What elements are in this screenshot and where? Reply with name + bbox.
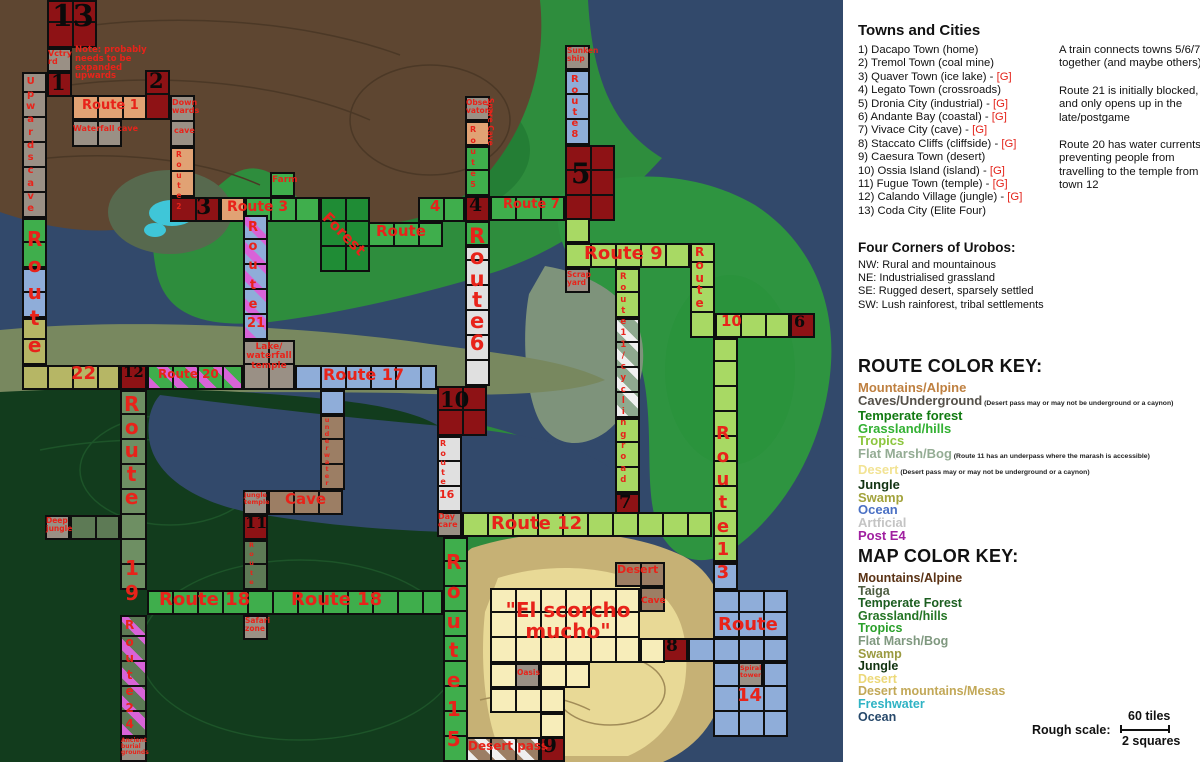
map-tile-desert [640,638,665,663]
map-label: Route 7 [503,198,560,211]
map-label: Route15 [446,548,461,754]
town-list-item: 5) Dronia City (industrial) - [G] [858,98,1022,111]
map-key-item: Temperate Forest [858,597,1005,610]
map-tile-desert [490,688,565,713]
map-label: Vctry rd [48,50,72,66]
map-label: Route 3 [227,200,288,214]
map-label: 4 [469,196,482,216]
route-key-note: (Route 11 has an underpass where the mar… [952,453,1150,460]
map-label: 19 [125,556,139,606]
freshwater-lake [144,223,166,237]
map-tile-tropics [615,418,640,493]
route-key-item: Swamp [858,492,1173,505]
map-label: 21 [247,317,265,330]
map-label: Route 18 [159,591,250,610]
map-label: Route 1 [82,99,139,112]
corners-title: Four Corners of Urobos: [858,240,1016,255]
map-label: Route [249,541,254,587]
corner-item: SW: Lush rainforest, tribal settlements [858,299,1044,312]
map-label: Jungle temple [244,492,270,505]
corner-item: NW: Rural and mountainous [858,259,1044,272]
map-label: Route [440,439,446,487]
map-label: 5 [571,160,590,189]
map-label: Waterfall cave [73,125,138,133]
map-label: Spare Cave [486,98,494,146]
map-label: cave [174,127,195,135]
gym-badge: [G] [992,111,1007,123]
route-key-label: Post E4 [858,528,906,543]
map-label: Desert pass [468,740,548,752]
map-label: 1 [51,72,66,94]
town-list: 1) Dacapo Town (home)2) Tremol Town (coa… [858,44,1022,218]
map-tile-jungleRoute [243,540,268,590]
map-label: Down wards [172,99,199,115]
map-label: 10 [721,314,742,329]
gym-badge: [G] [972,124,987,136]
map-label: Route2 [176,150,182,212]
map-label: 3 [196,196,211,219]
map-tile-jungleRoute [70,515,120,540]
route-key-note: (Desert pass may or may not be undergrou… [982,400,1173,407]
corner-item: NE: Industrialised grassland [858,272,1044,285]
town-list-item: 6) Andante Bay (coastal) - [G] [858,111,1022,124]
scale-bottom-label: 2 squares [1122,734,1180,748]
note-text: Route 21 is initially blocked, and only … [1059,85,1200,125]
map-tile-grass [465,146,490,196]
map-label: 14 [737,687,762,706]
map-tile-grass [418,197,465,222]
map-label: Deep jungle [46,517,72,532]
route-key-item: Post E4 [858,530,1173,543]
map-label: Route 17 [323,367,404,383]
map-label: 16 [439,489,454,500]
town-list-item: 3) Quaver Town (ice lake) - [G] [858,71,1022,84]
map-label: Route 20 [158,368,219,380]
map-label: Day care [438,513,458,529]
route-key-item: Jungle [858,479,1173,492]
route-key-item: Grassland/hills [858,423,1173,436]
town-list-item: 7) Vivace City (cave) - [G] [858,124,1022,137]
map-label: Route24 [125,617,134,733]
map-label: Route [248,218,258,314]
route-key-label: Caves/Underground [858,393,982,408]
map-tile-oceanRoute [320,390,345,415]
note-text: A train connects towns 5/6/7 together (a… [1059,44,1200,71]
gym-badge: [G] [993,98,1008,110]
map-key-list: Mountains/AlpineTaigaTemperate ForestGra… [858,572,1005,723]
map-label: Ancient burial grounds [121,738,149,757]
map-label: Safari zone [245,617,270,632]
legend-panel: Towns and Cities 1) Dacapo Town (home)2)… [843,0,1200,762]
route-key-list: Mountains/AlpineCaves/Underground (Deser… [858,382,1173,542]
map-canvas: 13Vctry rdNote: probably needs to be exp… [0,0,843,762]
map-label: underwater [324,417,330,487]
map-label: Route [718,616,778,635]
route-key-note: (Desert pass may or may not be undergrou… [898,469,1089,476]
map-label: Spiral tower [740,665,761,678]
town-list-item: 12) Calando Village (jungle) - [G] [858,191,1022,204]
map-label: Route6 [469,226,485,354]
town-list-item: 10) Ossia Island (island) - [G] [858,165,1022,178]
town-list-item: 9) Caesura Town (desert) [858,151,1022,164]
gym-badge: [G] [993,178,1008,190]
map-label: Desert [617,564,658,575]
town-list-item: 8) Staccato Cliffs (cliffside) - [G] [858,138,1022,151]
map-label: 11 [245,515,267,531]
map-label: 10 [440,389,469,411]
map-label: 9 [543,735,557,756]
scale-bar [1120,729,1170,731]
map-label: Scrap yard [567,271,591,286]
gym-badge: [G] [997,71,1012,83]
map-key-item: Ocean [858,711,1005,724]
map-tile-desert [490,663,590,688]
gym-badge: [G] [1007,191,1022,203]
corner-item: SE: Rugged desert, sparsely settled [858,285,1044,298]
corners-list: NW: Rural and mountainousNE: Industriali… [858,259,1044,312]
map-label: Route13 [716,422,730,584]
map-label: Route [27,226,42,358]
map-label: 4 [430,199,440,214]
route-key-title: ROUTE COLOR KEY: [858,356,1042,377]
gym-badge: [G] [1001,138,1016,150]
route-key-label: Flat Marsh/Bog [858,446,952,461]
map-tile-marsh [615,318,640,418]
gym-badge: [G] [990,165,1005,177]
town-list-item: 1) Dacapo Town (home) [858,44,1022,57]
map-label: "El scorcho mucho" [503,600,633,641]
map-label: Farm [272,176,298,185]
scale-label: Rough scale: [1032,723,1111,737]
notes-column: A train connects towns 5/6/7 together (a… [1059,44,1200,207]
note-text: Route 20 has water currents preventing p… [1059,139,1200,193]
scale-tick-right [1168,725,1170,733]
map-label: Route [376,224,426,239]
map-label: Oasis [517,669,540,677]
scale-tick-left [1120,725,1122,733]
map-label: Route8 [571,74,579,140]
towns-title: Towns and Cities [858,22,980,39]
map-label: 13 [52,2,94,33]
map-tile-alpine [170,147,195,197]
map-label: Note: probably needs to be expanded upwa… [75,46,147,81]
scale-top-label: 60 tiles [1128,709,1170,723]
route-key-item: Desert (Desert pass may or may not be un… [858,464,1173,480]
map-label: Route 12 [491,515,582,534]
route-key-item: Flat Marsh/Bog (Route 11 has an underpas… [858,448,1173,464]
map-label: 6 [794,314,805,330]
map-tile-tropics [615,268,640,318]
town-list-item: 13) Coda City (Elite Four) [858,205,1022,218]
map-label: 8 [666,638,678,656]
map-label: Route [124,393,139,509]
map-label: Route5 [470,124,476,190]
map-tile-tropics [565,218,590,243]
map-label: Route 9 [584,245,663,264]
map-label: Sunken ship [567,47,598,62]
map-label: Cave [285,492,326,507]
map-label: Route [695,246,704,310]
map-key-item: Freshwater [858,698,1005,711]
map-label: Cave [641,597,666,606]
map-label: 7 [619,494,632,513]
town-list-item: 11) Fugue Town (temple) - [G] [858,178,1022,191]
map-label: Route11/cyclingroad [620,272,627,486]
town-list-item: 2) Tremol Town (coal mine) [858,57,1022,70]
map-label: 22 [71,365,96,384]
town-list-item: 4) Legato Town (crossroads) [858,84,1022,97]
map-key-item: Flat Marsh/Bog [858,635,1005,648]
map-label: 2 [149,70,164,92]
route-key-label: Desert [858,462,898,477]
map-tile-oceanRoute [688,638,788,662]
urobos-region-map-page: 13Vctry rdNote: probably needs to be exp… [0,0,1200,762]
map-label: Lake/ waterfall temple [243,343,295,371]
map-label: Route 18 [291,591,382,610]
map-label: Upwardscave [26,76,35,216]
map-label: 12 [123,365,144,380]
map-key-item: Jungle [858,660,1005,673]
map-key-item: Mountains/Alpine [858,572,1005,585]
map-key-title: MAP COLOR KEY: [858,546,1019,567]
